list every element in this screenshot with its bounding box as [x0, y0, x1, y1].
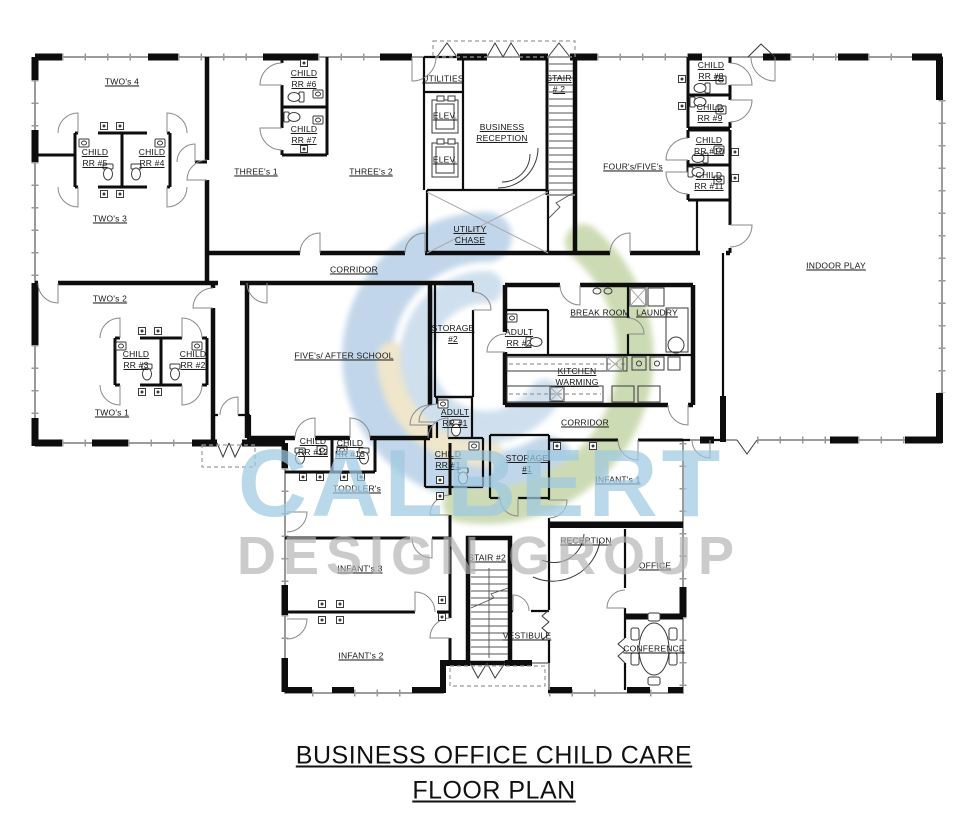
exterior-walls	[32, 54, 944, 694]
drawing-title: BUSINESS OFFICE CHILD CARE	[296, 742, 692, 771]
calbert-logo-swirl	[367, 237, 635, 506]
drawing-subtitle: FLOOR PLAN	[412, 777, 575, 806]
floor-plan-drawing	[0, 0, 980, 833]
floor-plan-page: TWO's 4 CHILD RR #5 CHILD RR #4 TWO's 3 …	[0, 0, 980, 833]
